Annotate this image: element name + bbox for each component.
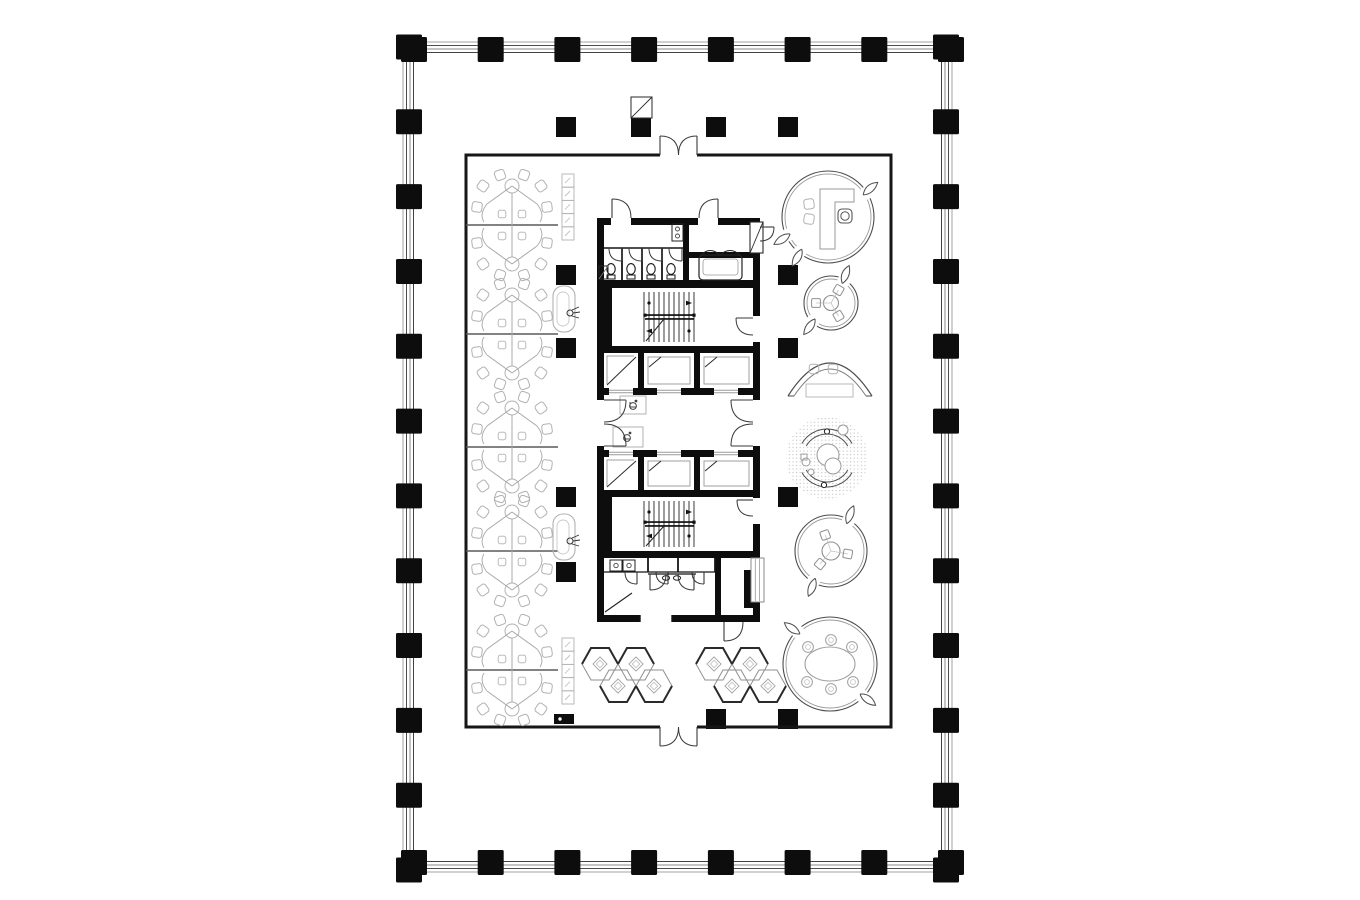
stair-north <box>643 292 695 342</box>
workstation-cluster <box>466 614 558 727</box>
interior-columns <box>554 97 798 729</box>
hex-desk <box>732 648 768 680</box>
stair-south <box>643 501 695 547</box>
meeting-pods <box>772 171 880 711</box>
workstation-cluster <box>466 495 558 608</box>
lounge-crescent <box>788 363 872 397</box>
meeting-pod <box>795 505 867 598</box>
service-core <box>596 199 774 641</box>
hex-desk <box>582 648 618 680</box>
south-rooms <box>604 558 764 641</box>
workstation-cluster <box>466 169 558 282</box>
workstation-cluster <box>466 278 558 391</box>
hex-desk <box>618 648 654 680</box>
garden-pod <box>786 417 868 499</box>
workstation-area <box>466 169 580 727</box>
perimeter-columns <box>396 35 964 883</box>
elevator-lobby <box>604 396 753 447</box>
meeting-pod <box>783 617 878 711</box>
hex-pod-desks <box>582 648 786 702</box>
hex-desk <box>636 670 672 702</box>
elevator-bank-north <box>607 356 749 385</box>
north-rooms <box>612 199 774 280</box>
locker-strip <box>562 638 574 704</box>
hex-desk <box>600 670 636 702</box>
elevator-bank-south <box>607 460 749 487</box>
hex-desk <box>714 670 750 702</box>
workstation-cluster <box>466 391 558 504</box>
meeting-pod <box>800 264 858 336</box>
restroom-stalls <box>599 224 683 280</box>
print-station <box>553 286 580 332</box>
hex-pod-group <box>582 648 672 702</box>
floor-plan-page <box>0 0 1360 900</box>
hex-pod-group <box>696 648 786 702</box>
floor-plan-canvas <box>0 0 1360 900</box>
hex-desk <box>750 670 786 702</box>
print-station <box>553 514 580 560</box>
focus-office-pod <box>772 171 880 267</box>
hex-desk <box>696 648 732 680</box>
locker-strip <box>562 174 574 240</box>
